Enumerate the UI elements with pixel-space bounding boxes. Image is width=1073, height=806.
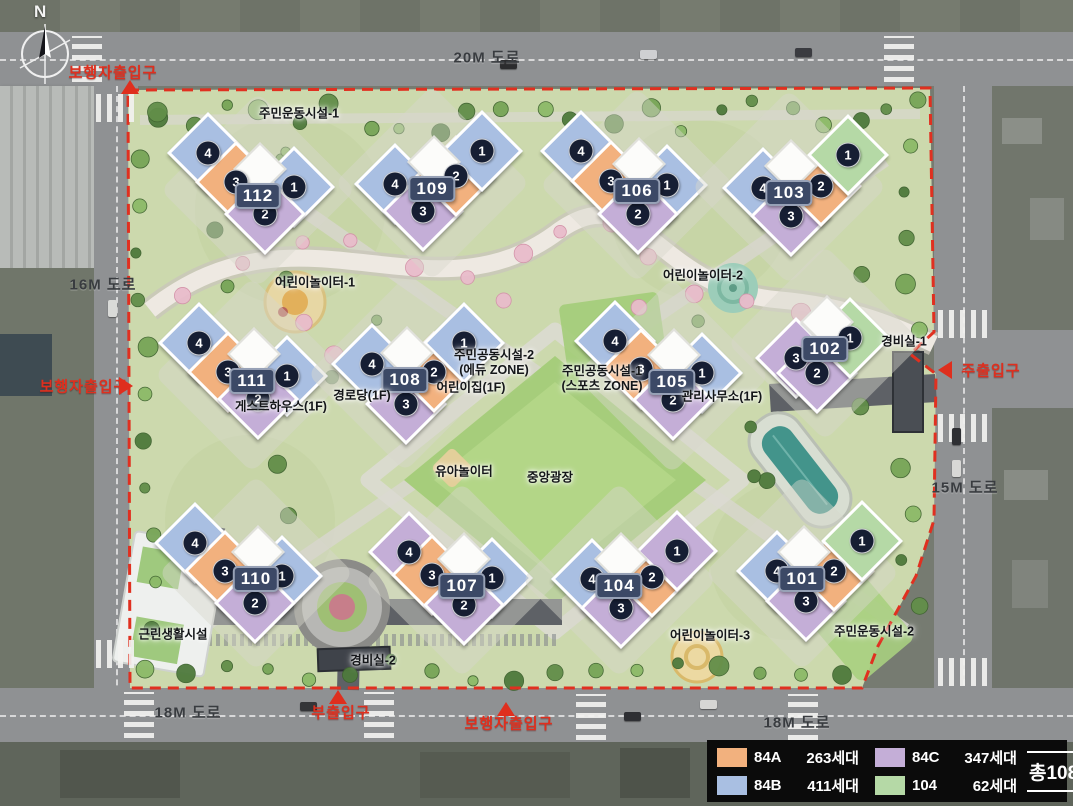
unit-number-105-4: 4 — [603, 329, 628, 354]
unit-number-111-4: 4 — [187, 331, 212, 356]
unit-number-104-1: 1 — [665, 539, 690, 564]
building-id-badge: 102 — [801, 336, 848, 362]
unit-number-104-3: 3 — [609, 596, 634, 621]
building-id-badge: 107 — [438, 573, 485, 599]
unit-number-103-1: 1 — [836, 143, 861, 168]
compass: N — [8, 2, 84, 94]
legend-grid: 84A263세대84C347세대84B411세대10462세대 — [717, 747, 1017, 796]
unit-number-106-2: 2 — [626, 202, 651, 227]
legend: 84A263세대84C347세대84B411세대10462세대 총1083세대 — [707, 740, 1067, 802]
unit-number-110-2: 2 — [243, 591, 268, 616]
unit-number-109-1: 1 — [470, 139, 495, 164]
site-plan-map: 4312112432110943121064321103431211143211… — [0, 0, 1073, 806]
buildings-layer: 4312112432110943121064321103431211143211… — [0, 0, 1073, 806]
unit-number-108-1: 1 — [452, 331, 477, 356]
unit-number-110-4: 4 — [183, 531, 208, 556]
building-id-badge: 103 — [765, 180, 812, 206]
legend-item-count: 62세대 — [955, 775, 1017, 796]
legend-swatch-84C — [875, 748, 905, 767]
unit-number-101-1: 1 — [850, 529, 875, 554]
legend-total: 총1083세대 — [1027, 751, 1073, 792]
legend-item-count: 347세대 — [955, 747, 1017, 768]
legend-swatch-84A — [717, 748, 747, 767]
legend-item-label: 84C — [912, 749, 948, 766]
unit-number-112-4: 4 — [196, 141, 221, 166]
building-id-badge: 101 — [778, 566, 825, 592]
legend-swatch-84B — [717, 776, 747, 795]
legend-item-104: 10462세대 — [875, 775, 1017, 796]
unit-number-104-2: 2 — [640, 565, 665, 590]
building-id-badge: 105 — [648, 369, 695, 395]
legend-item-label: 84B — [754, 777, 790, 794]
legend-item-84C: 84C347세대 — [875, 747, 1017, 768]
legend-item-84A: 84A263세대 — [717, 747, 859, 768]
building-id-badge: 112 — [235, 183, 281, 209]
unit-number-112-1: 1 — [282, 175, 307, 200]
building-id-badge: 110 — [233, 566, 279, 592]
legend-item-count: 411세대 — [797, 775, 859, 796]
building-id-badge: 108 — [381, 367, 428, 393]
legend-item-count: 263세대 — [797, 747, 859, 768]
legend-item-label: 104 — [912, 777, 948, 794]
building-id-badge: 109 — [408, 176, 455, 202]
legend-item-84B: 84B411세대 — [717, 775, 859, 796]
legend-item-label: 84A — [754, 749, 790, 766]
legend-swatch-104 — [875, 776, 905, 795]
unit-number-109-3: 3 — [411, 199, 436, 224]
unit-number-111-1: 1 — [275, 364, 300, 389]
unit-number-102-2: 2 — [805, 361, 830, 386]
building-id-badge: 106 — [613, 178, 660, 204]
unit-number-108-3: 3 — [394, 392, 419, 417]
unit-number-106-4: 4 — [569, 139, 594, 164]
compass-north-label: N — [34, 2, 46, 22]
building-id-badge: 111 — [229, 368, 275, 394]
unit-number-109-4: 4 — [383, 172, 408, 197]
unit-number-101-3: 3 — [794, 589, 819, 614]
unit-number-107-4: 4 — [397, 540, 422, 565]
unit-number-103-3: 3 — [779, 204, 804, 229]
building-id-badge: 104 — [595, 573, 642, 599]
